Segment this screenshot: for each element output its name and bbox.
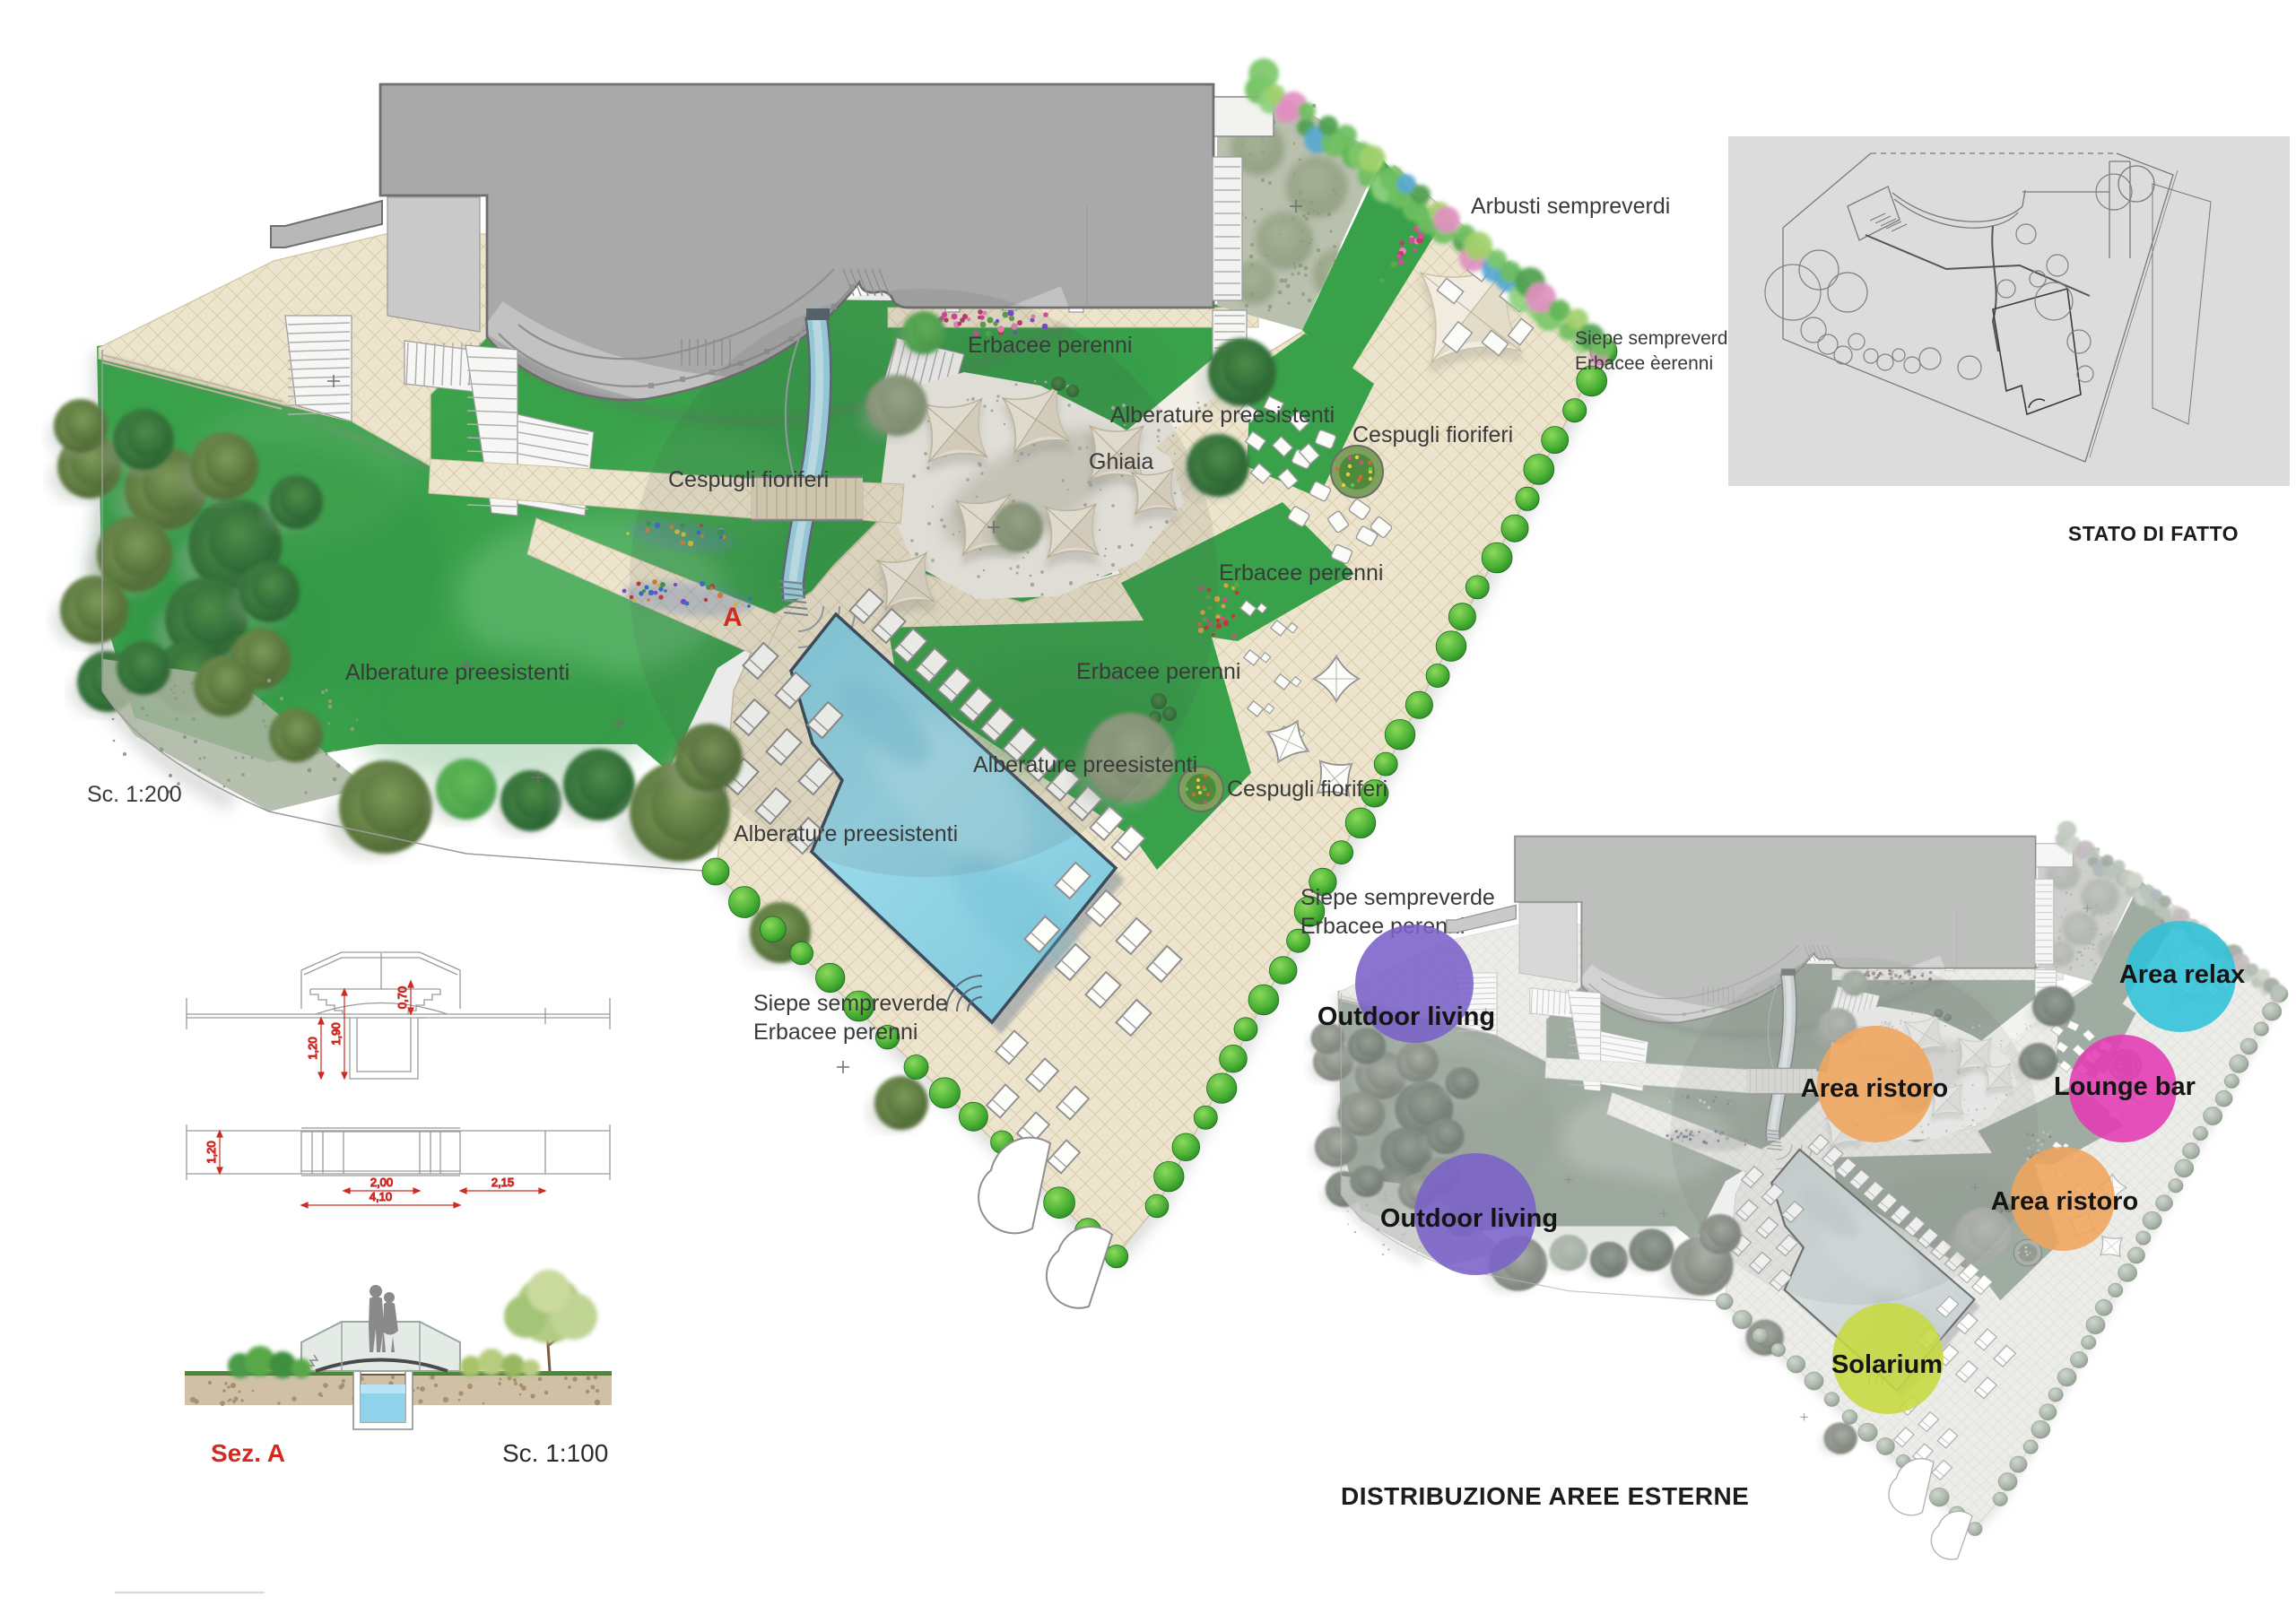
svg-text:4,10: 4,10 [370,1190,392,1203]
svg-text:1,20: 1,20 [204,1141,218,1163]
svg-text:Lounge bar: Lounge bar [2054,1072,2196,1101]
svg-text:Erbacee èerenni: Erbacee èerenni [1575,353,1713,374]
svg-text:Sc. 1:100: Sc. 1:100 [502,1439,608,1467]
svg-text:Outdoor living: Outdoor living [1380,1204,1558,1233]
svg-text:Siepe sempreverde: Siepe sempreverde [1575,328,1738,349]
svg-text:Sc. 1:200: Sc. 1:200 [87,782,182,807]
svg-text:Ghiaia: Ghiaia [1089,449,1153,474]
svg-text:Alberature preesistenti: Alberature preesistenti [1110,403,1335,428]
svg-text:Area ristoro: Area ristoro [1991,1187,2138,1216]
svg-text:A: A [723,603,743,632]
svg-text:Arbusti sempreverdi: Arbusti sempreverdi [1471,194,1670,219]
svg-text:2,00: 2,00 [370,1176,393,1189]
svg-text:1,90: 1,90 [329,1022,343,1045]
svg-text:Siepe sempreverde: Siepe sempreverde [753,991,948,1016]
svg-text:Outdoor living: Outdoor living [1318,1002,1495,1031]
svg-text:Cespugli fioriferi: Cespugli fioriferi [1227,777,1387,802]
svg-text:Erbacee perenni: Erbacee perenni [1219,560,1383,586]
svg-text:Erbacee perenni: Erbacee perenni [753,1020,918,1045]
svg-text:DISTRIBUZIONE AREE ESTERNE: DISTRIBUZIONE AREE ESTERNE [1341,1482,1749,1510]
svg-text:Cespugli fioriferi: Cespugli fioriferi [668,467,829,492]
svg-text:2,15: 2,15 [491,1176,514,1189]
svg-text:Alberature preesistenti: Alberature preesistenti [345,660,570,685]
svg-text:Sez. A: Sez. A [211,1439,285,1467]
svg-text:0,70: 0,70 [396,986,409,1009]
svg-text:Area ristoro: Area ristoro [1801,1074,1948,1103]
svg-text:Alberature preesistenti: Alberature preesistenti [973,752,1197,777]
svg-text:1,20: 1,20 [306,1037,319,1059]
svg-text:Area relax: Area relax [2119,960,2245,989]
svg-text:Solarium: Solarium [1831,1350,1943,1379]
svg-text:Erbacee perenni: Erbacee perenni [1076,659,1240,684]
svg-text:STATO DI FATTO: STATO DI FATTO [2068,522,2239,545]
svg-text:Siepe sempreverde: Siepe sempreverde [1300,885,1495,910]
svg-text:Erbacee perenni: Erbacee perenni [968,333,1132,358]
svg-text:Cespugli fioriferi: Cespugli fioriferi [1352,422,1513,447]
svg-text:Alberature preesistenti: Alberature preesistenti [734,821,958,846]
